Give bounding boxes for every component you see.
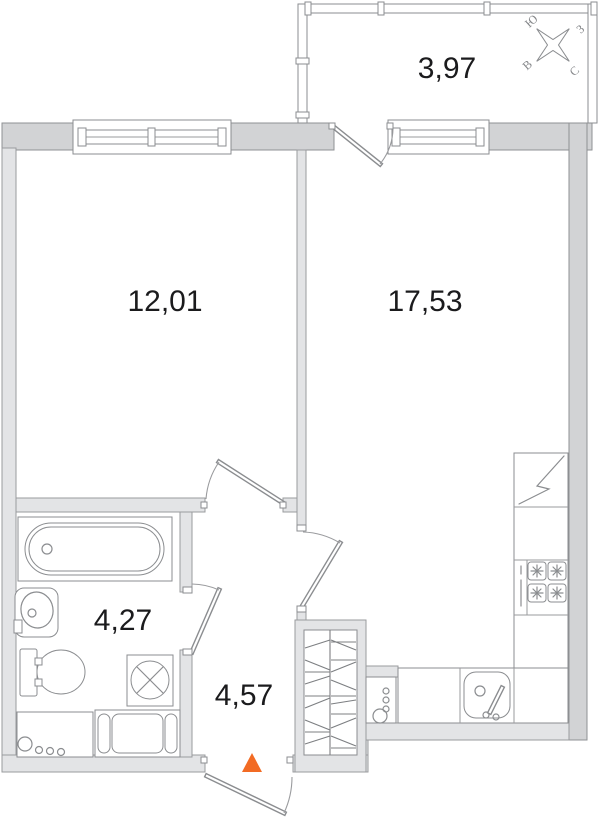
wardrobe-icon xyxy=(295,620,366,772)
towel-unit-icon xyxy=(95,710,180,757)
balcony-area-label: 3,97 xyxy=(418,52,476,85)
living-room-door xyxy=(297,525,340,612)
floor-plan-svg: Ю З В С 3,97 12,01 17,53 4,27 4,57 xyxy=(0,0,600,818)
bathroom-cabinet-icon xyxy=(17,712,93,757)
bedroom-door xyxy=(201,462,286,508)
bathroom-door xyxy=(183,584,219,655)
bedroom-area-label: 12,01 xyxy=(127,285,202,318)
compass-east-label: В xyxy=(520,57,535,73)
hallway-area-label: 4,57 xyxy=(215,679,273,712)
washing-machine-icon xyxy=(127,655,173,706)
washbasin-icon xyxy=(14,588,58,637)
bedroom-window xyxy=(73,120,231,154)
compass-rose-icon: Ю З В С xyxy=(520,12,588,79)
floor-plan: Ю З В С 3,97 12,01 17,53 4,27 4,57 xyxy=(0,0,600,818)
balcony-door xyxy=(329,123,393,164)
entrance-arrow-icon xyxy=(242,753,262,772)
toilet-icon xyxy=(20,649,85,696)
compass-west-label: З xyxy=(573,22,587,36)
boiler-panel-icon xyxy=(366,677,396,723)
bathtub-icon xyxy=(18,517,172,581)
compass-south-label: Ю xyxy=(522,12,541,31)
bathroom-area-label: 4,27 xyxy=(94,604,152,637)
kitchen-sink-icon xyxy=(464,672,510,720)
living-kitchen-area-label: 17,53 xyxy=(387,285,462,318)
living-window xyxy=(388,120,489,154)
compass-north-label: С xyxy=(567,63,582,79)
